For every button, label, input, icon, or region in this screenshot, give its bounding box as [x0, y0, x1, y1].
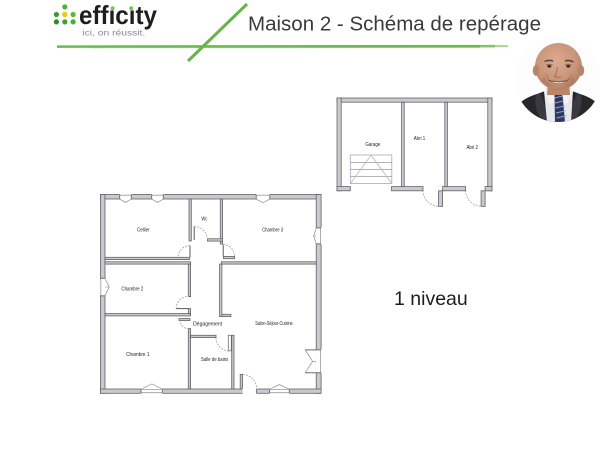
svg-text:Chambre 3: Chambre 3 [262, 227, 283, 233]
svg-text:1 niveau: 1 niveau [394, 288, 468, 310]
svg-text:ici, on réussit.: ici, on réussit. [82, 27, 145, 37]
svg-text:Abri 1: Abri 1 [414, 136, 426, 142]
svg-text:Wc: Wc [201, 217, 207, 223]
svg-text:Salle de bains: Salle de bains [201, 357, 229, 363]
svg-text:Abri 2: Abri 2 [466, 145, 478, 151]
svg-text:Dégagement: Dégagement [193, 321, 223, 327]
svg-text:Garage: Garage [365, 142, 380, 148]
svg-text:effıcıty: effıcıty [79, 0, 157, 30]
svg-text:Cellier: Cellier [137, 227, 150, 233]
svg-text:Chambre 1: Chambre 1 [126, 352, 150, 358]
svg-text:Chambre 2: Chambre 2 [121, 287, 143, 293]
svg-text:Salon-Séjour-Cuisine: Salon-Séjour-Cuisine [255, 321, 293, 327]
svg-text:Maison 2 - Schéma de repérage: Maison 2 - Schéma de repérage [248, 14, 541, 36]
